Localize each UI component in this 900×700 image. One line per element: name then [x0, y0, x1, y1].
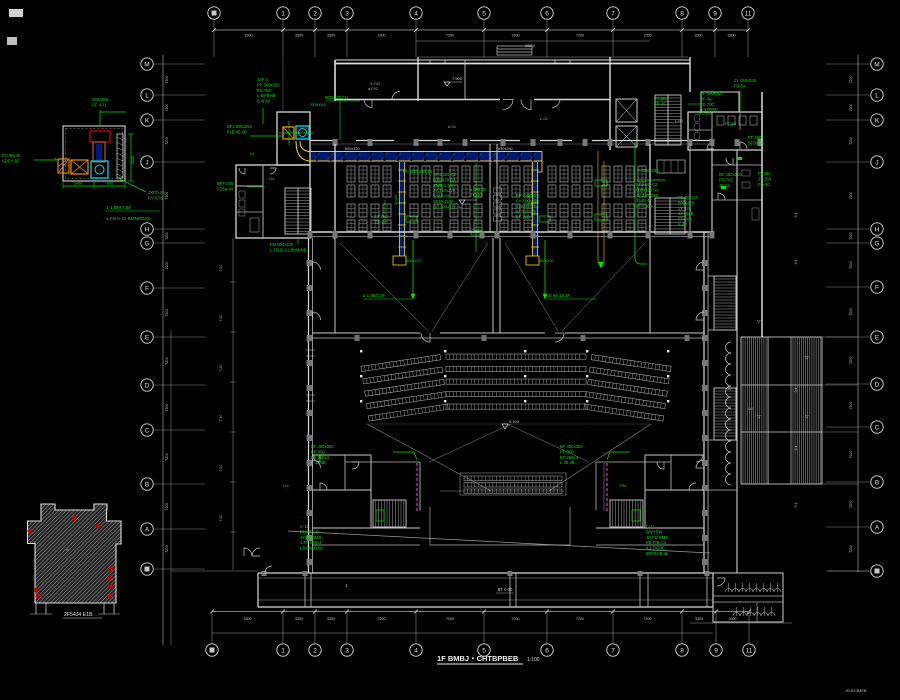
svg-text:7.20: 7.20	[219, 365, 223, 372]
svg-text:N4: N4	[748, 407, 753, 411]
svg-text:▽: ▽	[757, 319, 761, 324]
svg-text:2F54J4 E1B: 2F54J4 E1B	[64, 612, 93, 618]
svg-text:1.FD 0-21 BMNPDAK: 1.FD 0-21 BMNPDAK	[106, 216, 151, 221]
svg-text:a 4#2.2F: a 4#2.2F	[470, 187, 487, 192]
svg-text:FD5a 4#: FD5a 4#	[217, 187, 234, 192]
svg-text:600: 600	[107, 182, 113, 186]
svg-text:EF-1500: EF-1500	[636, 204, 653, 209]
svg-text:4x120: 4x120	[527, 195, 531, 205]
svg-text:9: 9	[713, 10, 717, 17]
svg-text:C-11: C-11	[646, 524, 655, 529]
svg-text:EF 250x4: EF 250x4	[560, 455, 579, 460]
svg-text:7: 7	[611, 10, 615, 17]
svg-text:EF 250x4: EF 250x4	[311, 455, 330, 460]
svg-text:1:100: 1:100	[527, 657, 540, 663]
svg-text:3300: 3300	[327, 34, 335, 38]
svg-text:H: H	[875, 226, 880, 233]
svg-text:7200: 7200	[849, 308, 853, 316]
svg-text:L-35 dB: L-35 dB	[311, 460, 326, 465]
svg-text:D: D	[145, 382, 150, 389]
svg-text:EF 4B: EF 4B	[725, 121, 736, 126]
svg-text:7200: 7200	[849, 104, 853, 112]
svg-text:JY 320x240: JY 320x240	[636, 193, 659, 198]
svg-text:800x320 FH: 800x320 FH	[325, 95, 348, 100]
svg-text:L-02: L-02	[540, 117, 548, 121]
svg-text:BF4 500x250: BF4 500x250	[227, 124, 253, 129]
svg-text:7200: 7200	[165, 76, 169, 84]
svg-text:FD-70C: FD-70C	[719, 177, 734, 182]
svg-text:J: J	[875, 159, 878, 166]
svg-text:PF-350: PF-350	[560, 449, 574, 454]
svg-text:BAHB-CB: BAHB-CB	[300, 529, 319, 534]
svg-text:PF250: PF250	[375, 214, 388, 219]
svg-text:BF5a 4#: BF5a 4#	[748, 141, 765, 146]
svg-text:SF-1 BG-C2: SF-1 BG-C2	[433, 172, 457, 177]
svg-text:JY 450x250: JY 450x250	[734, 78, 757, 83]
svg-text:BF-3a: BF-3a	[700, 96, 712, 101]
svg-text:b-7a: b-7a	[448, 125, 456, 129]
svg-text:K: K	[875, 117, 880, 124]
svg-text:11: 11	[746, 647, 753, 654]
svg-text:at a0.12.2F: at a0.12.2F	[548, 293, 571, 298]
svg-text:SF500x2: SF500x2	[310, 102, 327, 107]
svg-text:5.100: 5.100	[509, 419, 520, 424]
svg-text:7200: 7200	[165, 545, 169, 553]
svg-text:PF 500x320: PF 500x320	[257, 82, 280, 87]
svg-text:FH 500x250 4B: FH 500x250 4B	[403, 169, 432, 174]
svg-text:4: 4	[414, 647, 418, 654]
svg-text:7200: 7200	[446, 617, 454, 621]
svg-text:L: L	[875, 92, 879, 99]
svg-text:C: C	[145, 427, 150, 434]
svg-text:FG 50x40: FG 50x40	[2, 153, 21, 158]
svg-text:PF BG-C2: PF BG-C2	[678, 195, 698, 200]
svg-text:4# 1.5 m/s: 4# 1.5 m/s	[516, 209, 536, 214]
svg-text:FD 70C: FD 70C	[700, 102, 714, 107]
svg-text:L-35 dB: L-35 dB	[560, 460, 575, 465]
svg-text:25dB 4#: 25dB 4#	[636, 198, 652, 203]
svg-text:4: 4	[414, 10, 418, 17]
svg-text:3300: 3300	[729, 617, 737, 621]
svg-text:7200: 7200	[378, 34, 386, 38]
svg-text:7200: 7200	[165, 262, 169, 270]
svg-text:500x320 SA: 500x320 SA	[636, 187, 659, 192]
svg-text:BPF 250: BPF 250	[217, 181, 234, 186]
svg-text:FD-3C: FD-3C	[758, 182, 770, 187]
svg-text:500x120: 500x120	[539, 259, 554, 263]
svg-text:800x320: 800x320	[345, 147, 360, 151]
svg-text:J1a: J1a	[268, 176, 275, 181]
svg-text:n-4P: n-4P	[678, 222, 687, 227]
svg-text:7.20: 7.20	[219, 515, 223, 522]
svg-text:M: M	[144, 61, 149, 68]
svg-text:SF 4-71: SF 4-71	[92, 103, 108, 108]
svg-text:G: G	[874, 240, 879, 247]
svg-text:EF-2#: EF-2#	[375, 220, 387, 225]
svg-text:7200: 7200	[576, 617, 584, 621]
svg-text:7200: 7200	[165, 232, 169, 240]
svg-text:BF 450x300: BF 450x300	[560, 444, 583, 449]
svg-text:1400: 1400	[74, 182, 82, 186]
svg-text:5.4: 5.4	[794, 213, 798, 218]
svg-text:L-5/FBHB: L-5/FBHB	[257, 93, 276, 98]
svg-text:a-F02: a-F02	[368, 87, 378, 91]
svg-text:PM: PM	[620, 483, 626, 488]
svg-text:7.20: 7.20	[219, 465, 223, 472]
svg-text:3300: 3300	[327, 617, 335, 621]
svg-text:6: 6	[545, 647, 549, 654]
svg-text:L.FD D-21 BMWNB: L.FD D-21 BMWNB	[270, 248, 307, 253]
svg-text:500x320: 500x320	[678, 200, 695, 205]
svg-text:PF-350: PF-350	[311, 449, 325, 454]
svg-text:3300: 3300	[245, 34, 253, 38]
svg-text:BG 200x120: BG 200x120	[433, 204, 457, 209]
svg-text:LB BMJ0 bp: LB BMJ0 bp	[300, 546, 323, 551]
svg-text:8: 8	[680, 10, 684, 17]
svg-text:4# 15dB: 4# 15dB	[678, 211, 694, 216]
svg-text:11: 11	[745, 10, 752, 17]
svg-text:3300: 3300	[728, 34, 736, 38]
svg-text:7200: 7200	[849, 232, 853, 240]
svg-text:▽: ▽	[757, 414, 761, 419]
svg-text:JXFD-25: JXFD-25	[148, 190, 165, 195]
svg-text:7200: 7200	[446, 34, 454, 38]
svg-text:1: 1	[281, 10, 285, 17]
svg-text:7.20: 7.20	[219, 265, 223, 272]
svg-text:3: 3	[345, 647, 349, 654]
svg-text:B: B	[875, 479, 879, 486]
svg-text:B=45 c/s: B=45 c/s	[433, 194, 449, 199]
svg-text:BF 450x300: BF 450x300	[311, 444, 334, 449]
svg-text:FM 500x320: FM 500x320	[270, 242, 294, 247]
svg-text:JY 320x320: JY 320x320	[433, 188, 456, 193]
svg-text:J: J	[145, 159, 148, 166]
svg-text:PY450: PY450	[654, 96, 667, 101]
svg-text:2000: 2000	[131, 156, 135, 164]
svg-text:7200: 7200	[849, 501, 853, 509]
svg-text:3300: 3300	[244, 617, 252, 621]
svg-text:5: 5	[482, 10, 486, 17]
svg-text:5-4PW: 5-4PW	[257, 99, 270, 104]
svg-text:4.1 DGBE: 4.1 DGBE	[646, 546, 665, 551]
svg-text:a 1.35/2.2F: a 1.35/2.2F	[363, 293, 386, 298]
svg-text:7200: 7200	[165, 453, 169, 461]
svg-text:7200: 7200	[512, 617, 520, 621]
svg-text:PY 0.75: PY 0.75	[148, 196, 163, 201]
svg-text:B: B	[145, 481, 149, 488]
svg-text:3300: 3300	[295, 617, 303, 621]
svg-text:8: 8	[680, 647, 684, 654]
svg-text:25dB 1.5/s: 25dB 1.5/s	[433, 183, 453, 188]
svg-text:JSF-1: JSF-1	[257, 77, 269, 82]
svg-text:7200: 7200	[512, 34, 520, 38]
svg-text:BW BHB dp: BW BHB dp	[646, 551, 669, 556]
svg-text:7200: 7200	[576, 34, 584, 38]
svg-text:5.4: 5.4	[794, 260, 798, 265]
svg-text:FD-70C: FD-70C	[257, 88, 272, 93]
svg-text:250x250: 250x250	[92, 97, 109, 102]
svg-text:2: 2	[313, 647, 317, 654]
svg-text:7.20: 7.20	[219, 415, 223, 422]
svg-text:A: A	[145, 526, 150, 533]
svg-text:7200: 7200	[849, 402, 853, 410]
svg-text:PF 500: PF 500	[748, 135, 762, 140]
svg-text:1: 1	[281, 647, 285, 654]
svg-text:C: C	[875, 424, 880, 431]
svg-text:7200: 7200	[165, 404, 169, 412]
svg-text:JY 250: JY 250	[758, 176, 772, 181]
svg-text:3300: 3300	[295, 34, 303, 38]
svg-text:1F BMBJ・CHTBPBEB: 1F BMBJ・CHTBPBEB	[437, 654, 519, 663]
svg-text:7200: 7200	[849, 192, 853, 200]
svg-text:JY.FD BMB: JY.FD BMB	[300, 535, 322, 540]
svg-text:L: L	[145, 92, 149, 99]
svg-text:SF4# 1500: SF4# 1500	[433, 199, 454, 204]
svg-text:▽: ▽	[805, 414, 809, 419]
svg-text:7200: 7200	[165, 104, 169, 112]
svg-text:F: F	[145, 285, 149, 292]
svg-text:7200: 7200	[165, 309, 169, 317]
svg-text:9: 9	[714, 647, 718, 654]
svg-text:D: D	[875, 381, 880, 388]
svg-text:630x250: 630x250	[498, 147, 513, 151]
svg-text:2: 2	[313, 10, 317, 17]
svg-text:500x320 SA: 500x320 SA	[433, 177, 456, 182]
svg-text:5.4: 5.4	[794, 503, 798, 508]
svg-text:JY 320: JY 320	[678, 206, 692, 211]
svg-text:7200: 7200	[849, 357, 853, 365]
svg-text:7200: 7200	[165, 503, 169, 511]
svg-text:7a4: 7a4	[725, 387, 731, 391]
svg-text:SF2 BG-C2: SF2 BG-C2	[636, 182, 658, 187]
svg-text:PF 450x250: PF 450x250	[700, 91, 723, 96]
svg-text:7200: 7200	[165, 357, 169, 365]
svg-text:7200: 7200	[165, 192, 169, 200]
svg-text:1.PF 500x4: 1.PF 500x4	[300, 540, 322, 545]
svg-text:SDFH BF: SDFH BF	[2, 159, 20, 164]
svg-text:E: E	[145, 334, 150, 341]
svg-text:7200: 7200	[849, 76, 853, 84]
svg-text:FB-5a: FB-5a	[734, 84, 746, 89]
svg-text:7200: 7200	[849, 137, 853, 145]
svg-text:BT 0.00: BT 0.00	[498, 587, 513, 592]
svg-text:M: M	[874, 61, 879, 68]
svg-text:F: F	[875, 284, 879, 291]
svg-text:3300: 3300	[695, 617, 703, 621]
svg-text:7.500: 7.500	[452, 76, 463, 81]
svg-text:EF-200: EF-200	[678, 217, 692, 222]
svg-text:4x120: 4x120	[394, 195, 398, 205]
svg-text:BF 450x250: BF 450x250	[719, 172, 742, 177]
svg-text:▽: ▽	[805, 355, 809, 360]
svg-text:EF-200: EF-200	[516, 215, 530, 220]
svg-text:FsB-45 4B: FsB-45 4B	[227, 130, 247, 135]
svg-text:6: 6	[545, 10, 549, 17]
svg-text:JS-730: JS-730	[698, 111, 711, 116]
svg-text:7200: 7200	[644, 617, 652, 621]
svg-text:7200: 7200	[849, 261, 853, 269]
svg-text:7200: 7200	[644, 34, 652, 38]
svg-text:500x120: 500x120	[406, 259, 421, 263]
svg-text:PY450: PY450	[758, 171, 771, 176]
svg-text:7200: 7200	[849, 451, 853, 459]
svg-text:FD-3C: FD-3C	[654, 102, 666, 107]
svg-text:K: K	[145, 117, 150, 124]
svg-text:A: A	[875, 524, 880, 531]
svg-text:7.20: 7.20	[219, 315, 223, 322]
svg-text:BWYBW: BWYBW	[646, 529, 662, 534]
svg-text:JS-03 B4FB: JS-03 B4FB	[845, 688, 867, 693]
svg-text:JY320: JY320	[470, 193, 483, 198]
svg-text:7200: 7200	[849, 545, 853, 553]
svg-text:L-B2: L-B2	[675, 119, 683, 123]
svg-text:FH500x250: FH500x250	[637, 168, 659, 173]
svg-text:G: G	[144, 240, 149, 247]
svg-text:3300: 3300	[695, 34, 703, 38]
svg-text:#1: #1	[250, 151, 255, 156]
svg-text:E: E	[875, 334, 880, 341]
svg-text:3: 3	[345, 10, 349, 17]
svg-text:1-1 BM 1:50: 1-1 BM 1:50	[106, 205, 131, 210]
svg-text:PB P/B-C2: PB P/B-C2	[646, 540, 667, 545]
svg-text:H: H	[145, 226, 150, 233]
svg-text:7200: 7200	[378, 617, 386, 621]
svg-text:Lta: Lta	[283, 483, 289, 488]
svg-text:C-11: C-11	[300, 524, 309, 529]
svg-text:7200: 7200	[165, 137, 169, 145]
svg-text:JD.FD BMB: JD.FD BMB	[646, 535, 668, 540]
svg-text:7: 7	[611, 647, 615, 654]
svg-text:4-F02: 4-F02	[370, 81, 381, 86]
